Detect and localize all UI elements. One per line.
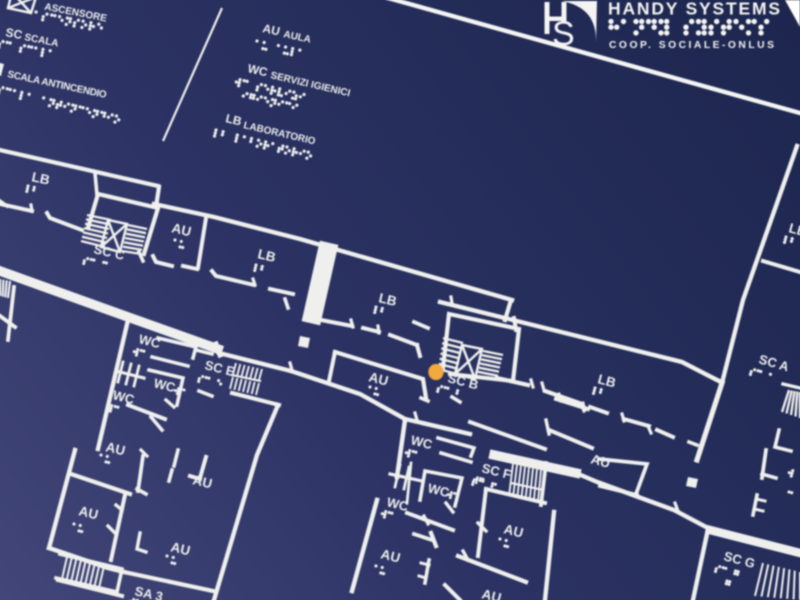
svg-text:S: S [552, 15, 575, 53]
svg-text:COOP. SOCIALE-ONLUS: COOP. SOCIALE-ONLUS [609, 40, 776, 51]
svg-text:HANDY SYSTEMS: HANDY SYSTEMS [608, 0, 782, 19]
